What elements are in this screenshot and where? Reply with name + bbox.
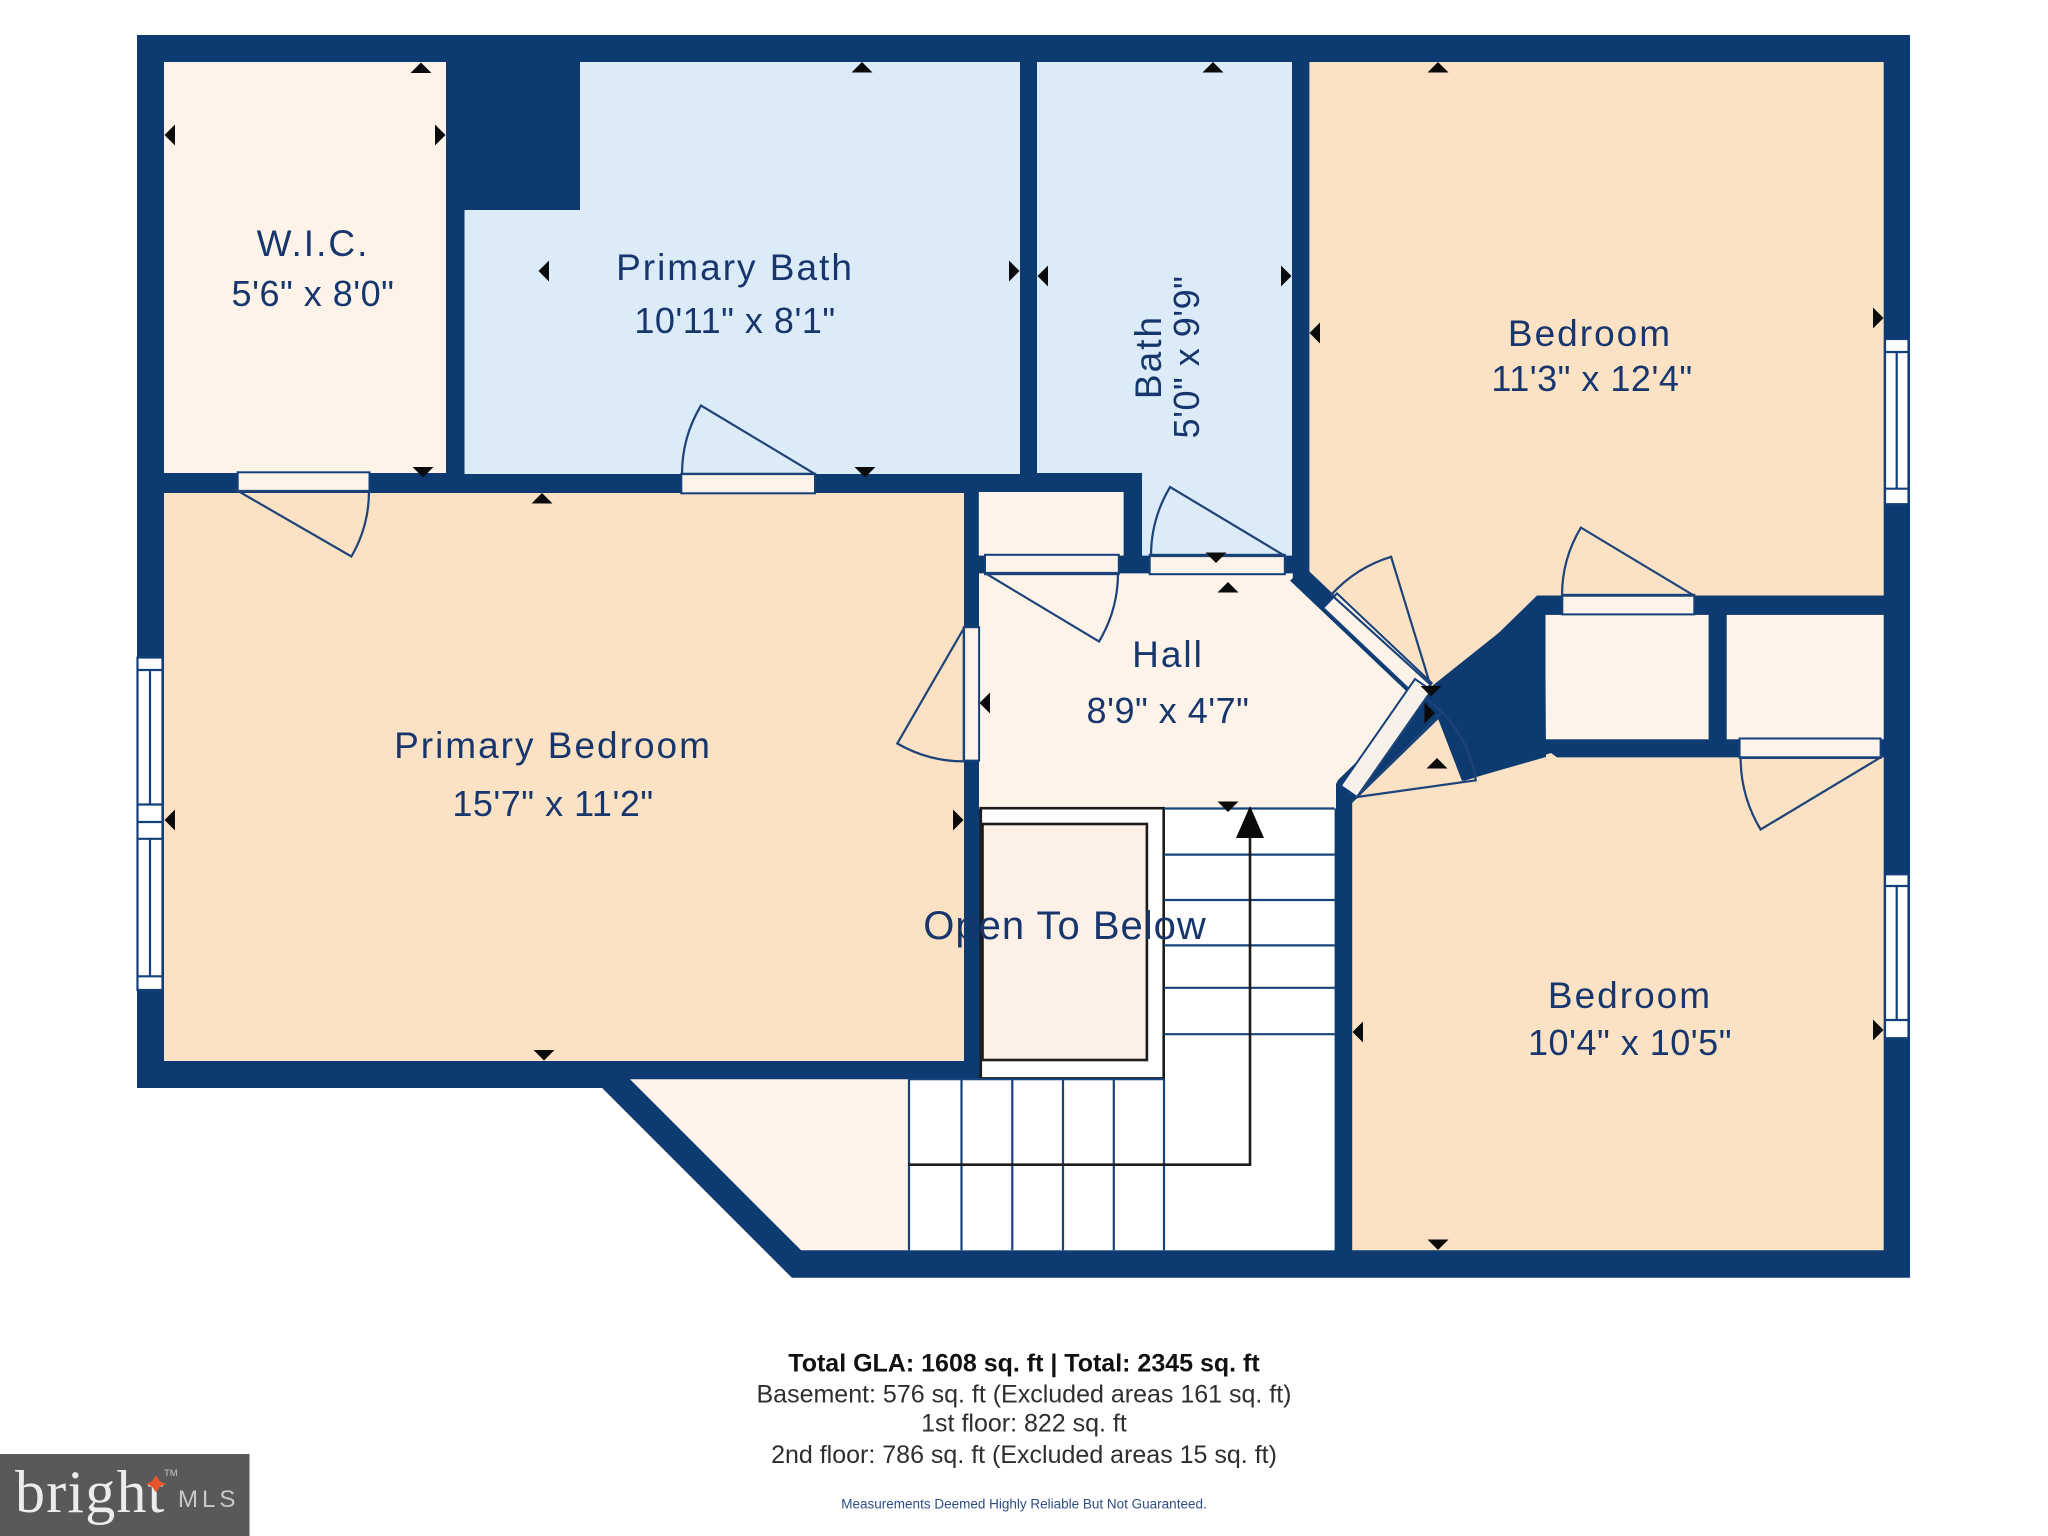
svg-text:Primary Bedroom: Primary Bedroom [394,725,712,766]
svg-text:10'4" x 10'5": 10'4" x 10'5" [1528,1022,1732,1063]
svg-text:Bedroom: Bedroom [1508,313,1672,354]
svg-text:bright: bright [15,1459,166,1525]
svg-text:Basement: 576 sq. ft (Excluded: Basement: 576 sq. ft (Excluded areas 161… [756,1381,1291,1409]
svg-text:11'3" x 12'4": 11'3" x 12'4" [1491,358,1692,399]
svg-text:1st floor: 822 sq. ft: 1st floor: 822 sq. ft [921,1410,1127,1438]
svg-text:5'0" x 9'9": 5'0" x 9'9" [1166,276,1207,439]
svg-text:TM: TM [164,1468,178,1479]
svg-text:Hall: Hall [1132,634,1204,675]
svg-text:W.I.C.: W.I.C. [257,223,370,264]
svg-text:15'7" x 11'2": 15'7" x 11'2" [452,783,653,824]
svg-text:Primary Bath: Primary Bath [616,247,854,288]
svg-text:MLS: MLS [178,1486,239,1513]
svg-text:Total GLA: 1608 sq. ft | Total: Total GLA: 1608 sq. ft | Total: 2345 sq.… [788,1350,1260,1378]
svg-text:8'9" x 4'7": 8'9" x 4'7" [1087,690,1250,731]
svg-text:Bedroom: Bedroom [1548,975,1712,1016]
svg-text:Open To Below: Open To Below [923,904,1207,948]
svg-text:2nd floor: 786 sq. ft (Exclude: 2nd floor: 786 sq. ft (Excluded areas 15… [771,1441,1277,1469]
svg-text:Measurements Deemed Highly Rel: Measurements Deemed Highly Reliable But … [841,1497,1206,1512]
svg-text:5'6" x 8'0": 5'6" x 8'0" [232,273,395,314]
svg-text:Bath: Bath [1128,315,1169,399]
svg-text:10'11" x 8'1": 10'11" x 8'1" [634,300,835,341]
